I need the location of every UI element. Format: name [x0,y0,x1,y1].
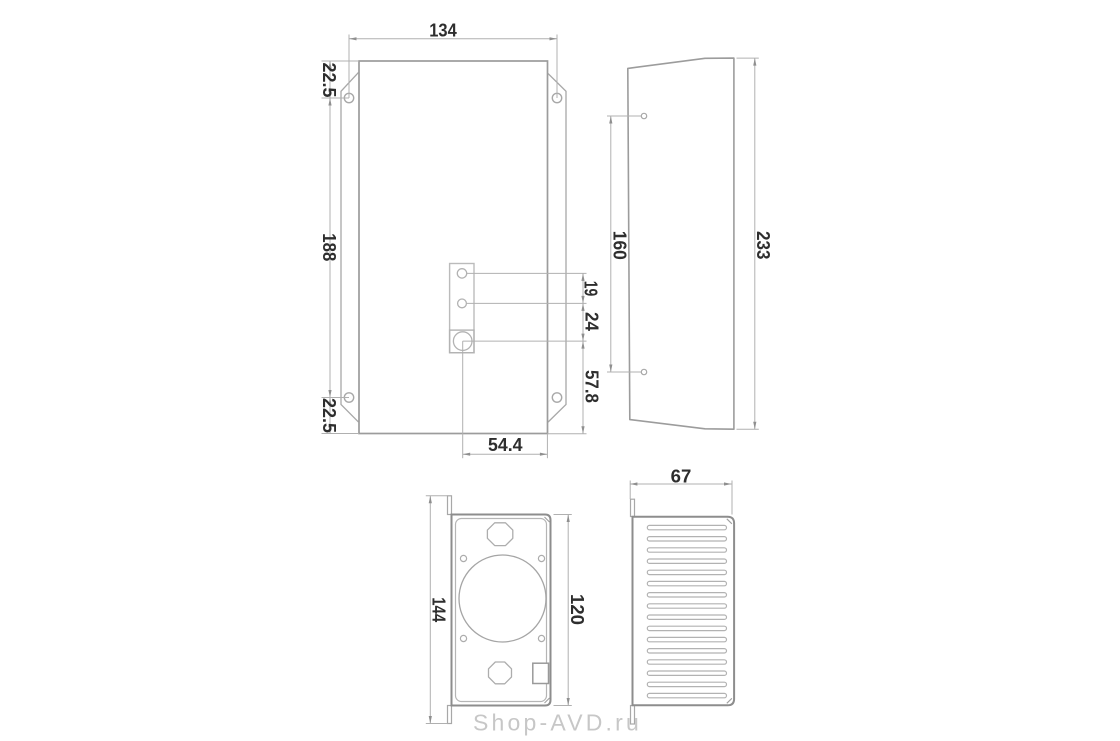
svg-text:19: 19 [581,281,601,297]
svg-text:144: 144 [428,597,448,622]
svg-text:57.8: 57.8 [582,370,602,403]
svg-text:67: 67 [671,467,692,487]
svg-text:120: 120 [567,594,587,625]
svg-text:24: 24 [582,312,602,331]
svg-text:160: 160 [609,231,629,260]
svg-text:233: 233 [753,231,773,259]
svg-text:134: 134 [429,21,457,41]
svg-text:Shop-AVD.ru: Shop-AVD.ru [473,710,641,736]
svg-text:22.5: 22.5 [319,398,339,433]
svg-text:54.4: 54.4 [488,435,523,455]
svg-text:22.5: 22.5 [319,63,339,98]
svg-text:188: 188 [319,233,339,261]
